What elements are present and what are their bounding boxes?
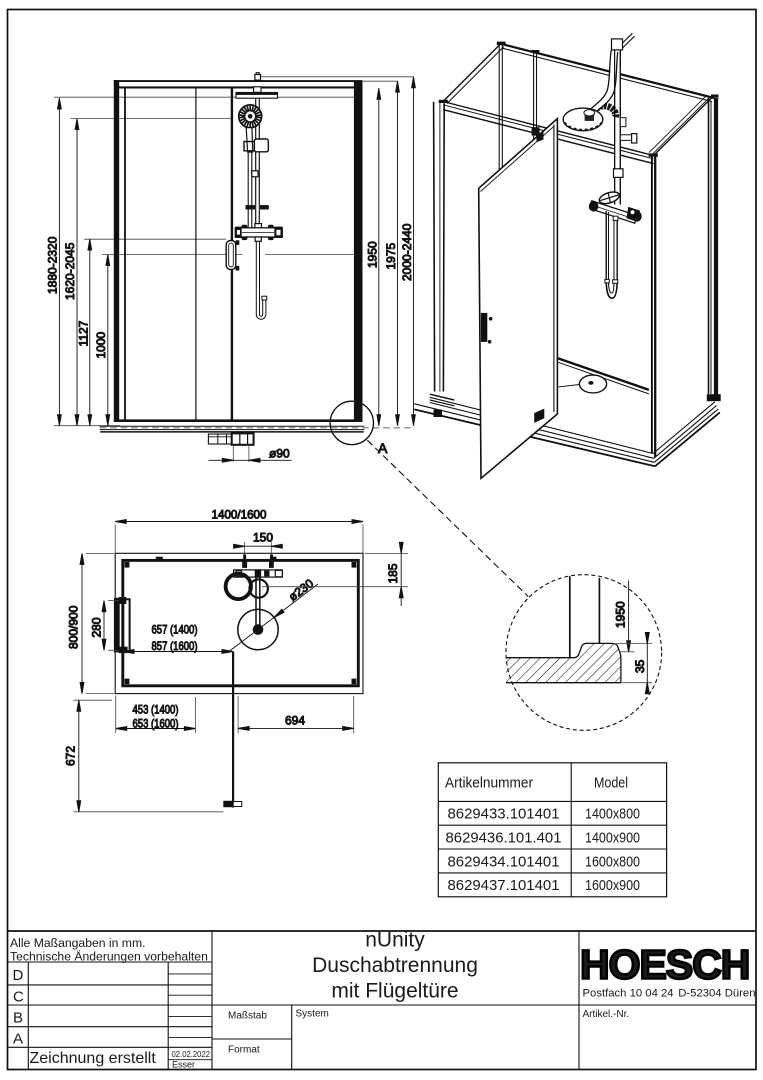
svg-text:D-52304 Düren: D-52304 Düren xyxy=(678,988,755,1000)
svg-text:2000-2440: 2000-2440 xyxy=(400,223,414,281)
svg-text:HOESCH: HOESCH xyxy=(580,942,749,988)
svg-text:ø90: ø90 xyxy=(269,447,290,461)
svg-text:1950: 1950 xyxy=(614,601,628,628)
svg-text:453 (1400): 453 (1400) xyxy=(133,703,179,717)
svg-text:D: D xyxy=(13,967,24,984)
svg-text:800/900: 800/900 xyxy=(67,605,81,649)
svg-text:1880-2320: 1880-2320 xyxy=(46,236,60,294)
svg-text:694: 694 xyxy=(285,714,305,728)
svg-text:8629434.101401: 8629434.101401 xyxy=(448,854,560,871)
svg-text:C: C xyxy=(13,989,24,1006)
svg-text:857 (1600): 857 (1600) xyxy=(152,639,198,653)
svg-text:Format: Format xyxy=(228,1045,260,1056)
svg-text:185: 185 xyxy=(386,563,400,583)
svg-text:35: 35 xyxy=(633,659,647,673)
svg-text:Artikelnummer: Artikelnummer xyxy=(445,775,533,792)
svg-text:mit Flügeltüre: mit Flügeltüre xyxy=(331,980,458,1003)
svg-text:Maßstab: Maßstab xyxy=(228,1011,267,1022)
svg-text:Alle Maßangaben in mm.: Alle Maßangaben in mm. xyxy=(10,936,145,950)
svg-text:nUnity: nUnity xyxy=(365,929,425,952)
svg-text:Model: Model xyxy=(594,775,628,792)
svg-text:8629433.101401: 8629433.101401 xyxy=(448,806,560,823)
svg-text:Technische Änderungen vorbehal: Technische Änderungen vorbehalten xyxy=(10,950,208,964)
svg-text:System: System xyxy=(296,1009,329,1020)
svg-text:1620-2045: 1620-2045 xyxy=(63,242,77,300)
svg-text:150: 150 xyxy=(253,531,273,545)
svg-text:653 (1600): 653 (1600) xyxy=(133,717,179,731)
svg-text:1975: 1975 xyxy=(384,242,398,269)
svg-text:1127: 1127 xyxy=(77,320,91,346)
svg-text:8629436.101.401: 8629436.101.401 xyxy=(446,830,562,847)
svg-text:1950: 1950 xyxy=(366,241,380,268)
svg-text:1000: 1000 xyxy=(94,331,108,358)
svg-text:Esser: Esser xyxy=(172,1060,195,1070)
svg-text:A: A xyxy=(13,1031,23,1048)
svg-text:657 (1400): 657 (1400) xyxy=(152,623,198,637)
svg-text:Artikel.-Nr.: Artikel.-Nr. xyxy=(583,1009,630,1020)
svg-text:1600x800: 1600x800 xyxy=(585,854,640,871)
svg-text:672: 672 xyxy=(64,746,78,766)
svg-text:280: 280 xyxy=(90,617,104,637)
svg-text:1400/1600: 1400/1600 xyxy=(212,508,267,522)
svg-text:B: B xyxy=(13,1010,23,1027)
svg-text:8629437.101401: 8629437.101401 xyxy=(448,877,560,894)
svg-text:A: A xyxy=(378,440,388,456)
svg-text:Zeichnung erstellt: Zeichnung erstellt xyxy=(30,1050,157,1067)
svg-text:Duschabtrennung: Duschabtrennung xyxy=(312,954,478,977)
svg-text:02.02.2022: 02.02.2022 xyxy=(172,1050,211,1059)
svg-text:Postfach 10 04 24: Postfach 10 04 24 xyxy=(583,988,674,1000)
svg-text:1400x800: 1400x800 xyxy=(585,806,640,823)
svg-text:1400x900: 1400x900 xyxy=(585,830,640,847)
svg-text:1600x900: 1600x900 xyxy=(585,877,640,894)
